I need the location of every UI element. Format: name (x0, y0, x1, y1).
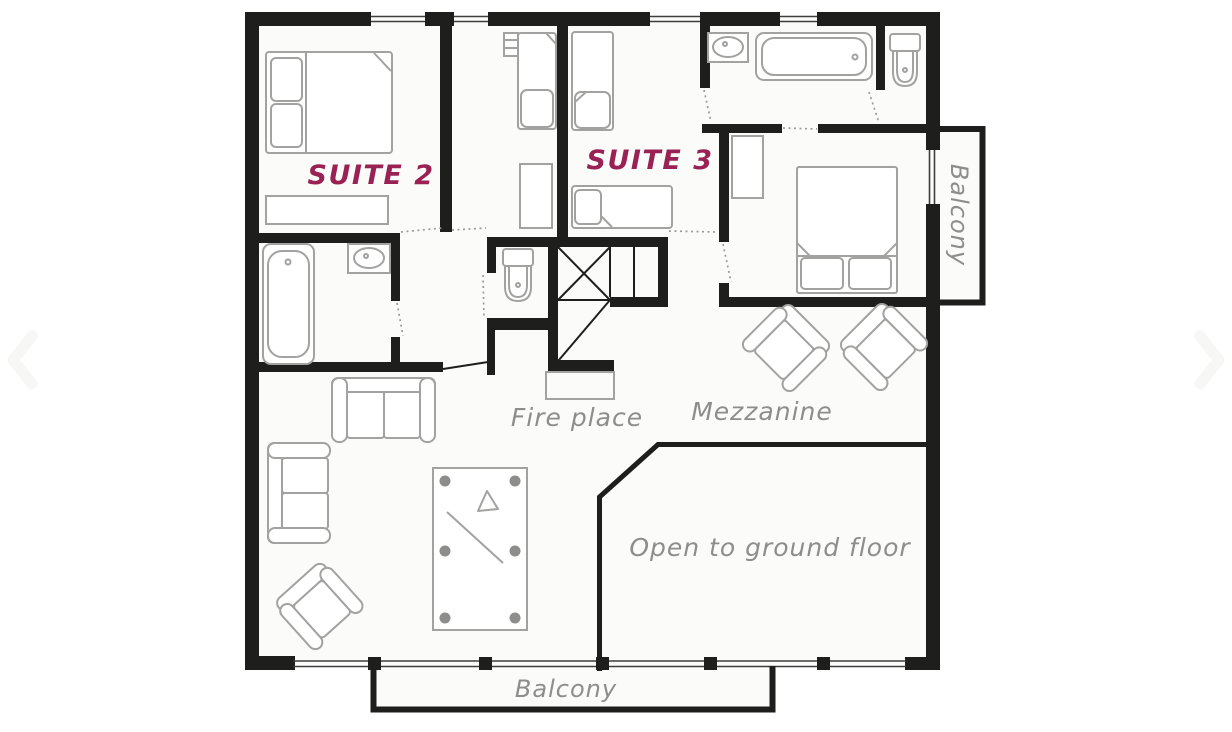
pocket (440, 546, 451, 557)
suite2-room (266, 52, 392, 224)
stair-landing-wall (610, 297, 668, 307)
bottom-wall-corner (905, 657, 940, 670)
pocket (440, 613, 451, 624)
toilet-nook-wall (876, 26, 885, 90)
top-wall (817, 12, 940, 26)
pocket (510, 613, 521, 624)
wc-room (503, 249, 533, 301)
sofa-arm (420, 378, 435, 442)
bathtub (756, 33, 872, 80)
top-wall (488, 12, 650, 26)
suite2-label: SUITE 2 (308, 160, 435, 191)
fireplace-label: Fire place (511, 403, 643, 432)
post (479, 657, 492, 670)
pillow (271, 104, 302, 147)
bathroom2-bottom-wall (818, 124, 932, 133)
wardrobe (732, 136, 763, 198)
pillow (575, 190, 601, 224)
cushion (347, 391, 384, 438)
cushion (384, 391, 420, 438)
sofa-vertical (268, 443, 330, 543)
left-wall (245, 12, 259, 670)
suite2-partition-wall (440, 26, 452, 232)
middle-partition-wall (557, 26, 568, 237)
pool-table (433, 468, 527, 630)
post (704, 657, 717, 670)
bedroom-left-wall (719, 127, 729, 242)
pocket (440, 476, 451, 487)
bathroom-top-wall (259, 233, 400, 243)
suite3-label: SUITE 3 (587, 145, 714, 176)
cushion (282, 493, 328, 529)
wc-left-stub (487, 318, 495, 375)
wardrobe (520, 164, 552, 228)
pillow (849, 258, 891, 289)
sofa-horizontal (332, 378, 435, 442)
bathroom2-bottom-wall (702, 124, 782, 133)
nightstand (504, 33, 518, 56)
landing-opening (669, 231, 716, 232)
post (817, 657, 830, 670)
top-wall (245, 12, 371, 26)
pocket (510, 476, 521, 487)
toilet-tank (890, 34, 920, 51)
duvet (521, 90, 553, 127)
bathtub (263, 244, 314, 364)
floorplan-page: SUITE 2 SUITE 3 Fire place Mezzanine Ope… (0, 0, 1232, 732)
bathroom-right-wall (391, 243, 400, 301)
mezzanine-label: Mezzanine (691, 397, 833, 426)
floor-plan: SUITE 2 SUITE 3 Fire place Mezzanine Ope… (0, 0, 1232, 732)
bottom-balcony-label: Balcony (515, 675, 617, 703)
bedroom-bottom-wall (719, 297, 940, 307)
cushion (282, 458, 328, 493)
sofa-arm (332, 378, 347, 442)
stair-top-wall (488, 237, 668, 247)
stair-left-wall (548, 247, 558, 372)
pillow (271, 58, 302, 101)
toilet-tank (503, 249, 533, 266)
top-wall (425, 12, 454, 26)
dresser (266, 196, 388, 224)
right-balcony-label: Balcony (945, 164, 973, 266)
right-wall (926, 204, 940, 670)
bottom-wall-corner (245, 656, 295, 670)
sofa-arm (268, 443, 330, 458)
chevron-right-icon[interactable] (1200, 336, 1219, 384)
pocket (510, 546, 521, 557)
top-wall (700, 12, 780, 26)
chevron-left-icon[interactable] (13, 336, 32, 384)
wc-bottom-wall (487, 318, 548, 330)
pillow (801, 258, 843, 289)
sofa-arm (268, 528, 330, 543)
open-to-ground-floor-label: Open to ground floor (629, 533, 911, 562)
